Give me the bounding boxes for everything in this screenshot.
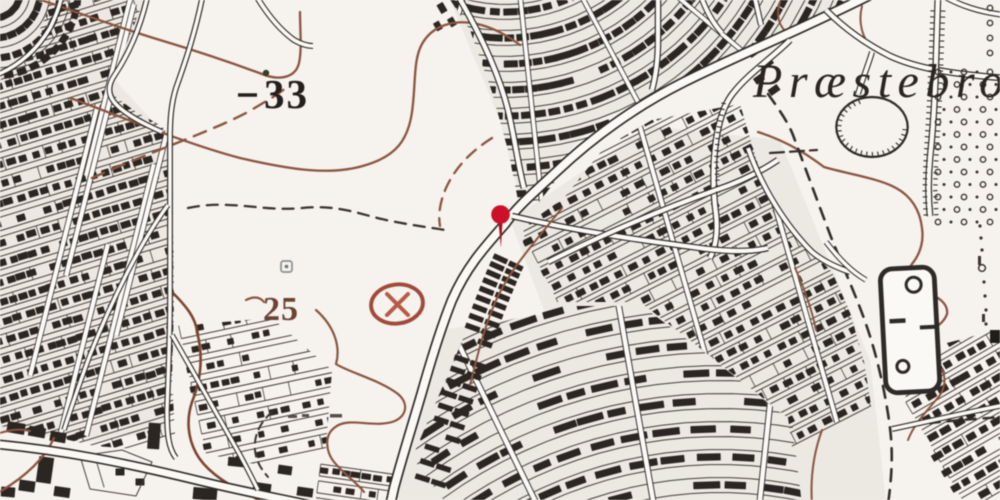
svg-text:Præstebro: Præstebro [752,55,1000,108]
svg-text:33: 33 [264,71,309,117]
svg-text:25: 25 [263,291,299,328]
